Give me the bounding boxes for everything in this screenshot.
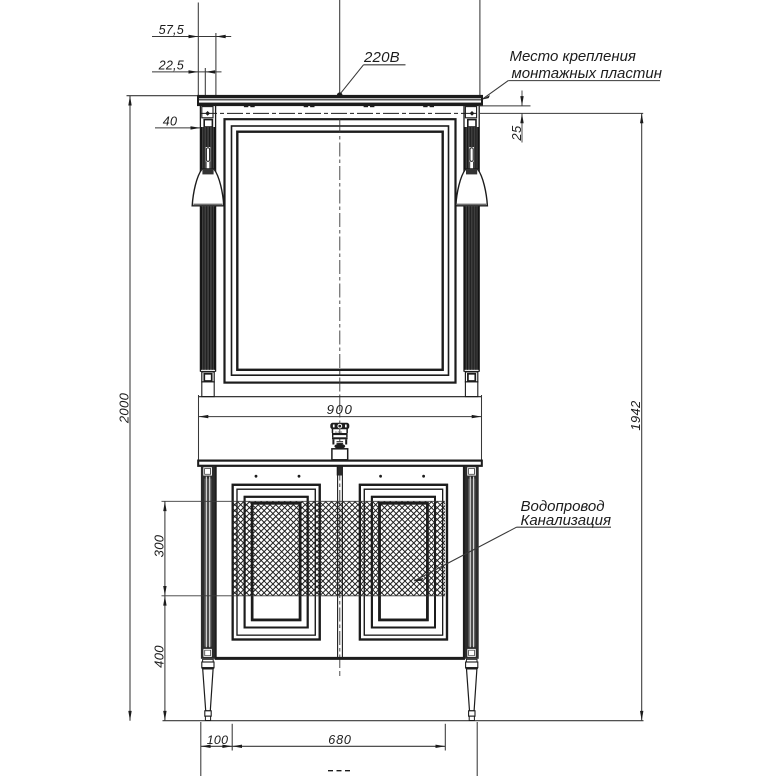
svg-text:Канализация: Канализация <box>521 512 612 529</box>
svg-text:680: 680 <box>328 733 351 747</box>
svg-text:100: 100 <box>207 733 229 747</box>
svg-text:900: 900 <box>327 402 354 417</box>
svg-text:Место крепления: Место крепления <box>510 48 636 65</box>
svg-text:1942: 1942 <box>628 400 643 431</box>
svg-text:25: 25 <box>509 125 524 142</box>
svg-text:400: 400 <box>151 645 166 668</box>
svg-text:57,5: 57,5 <box>159 23 185 37</box>
svg-text:300: 300 <box>151 534 166 557</box>
svg-text:22,5: 22,5 <box>158 58 185 72</box>
svg-text:монтажных пластин: монтажных пластин <box>512 65 662 82</box>
svg-text:40: 40 <box>163 114 177 128</box>
svg-text:220В: 220В <box>363 49 400 66</box>
svg-text:2000: 2000 <box>116 392 131 424</box>
